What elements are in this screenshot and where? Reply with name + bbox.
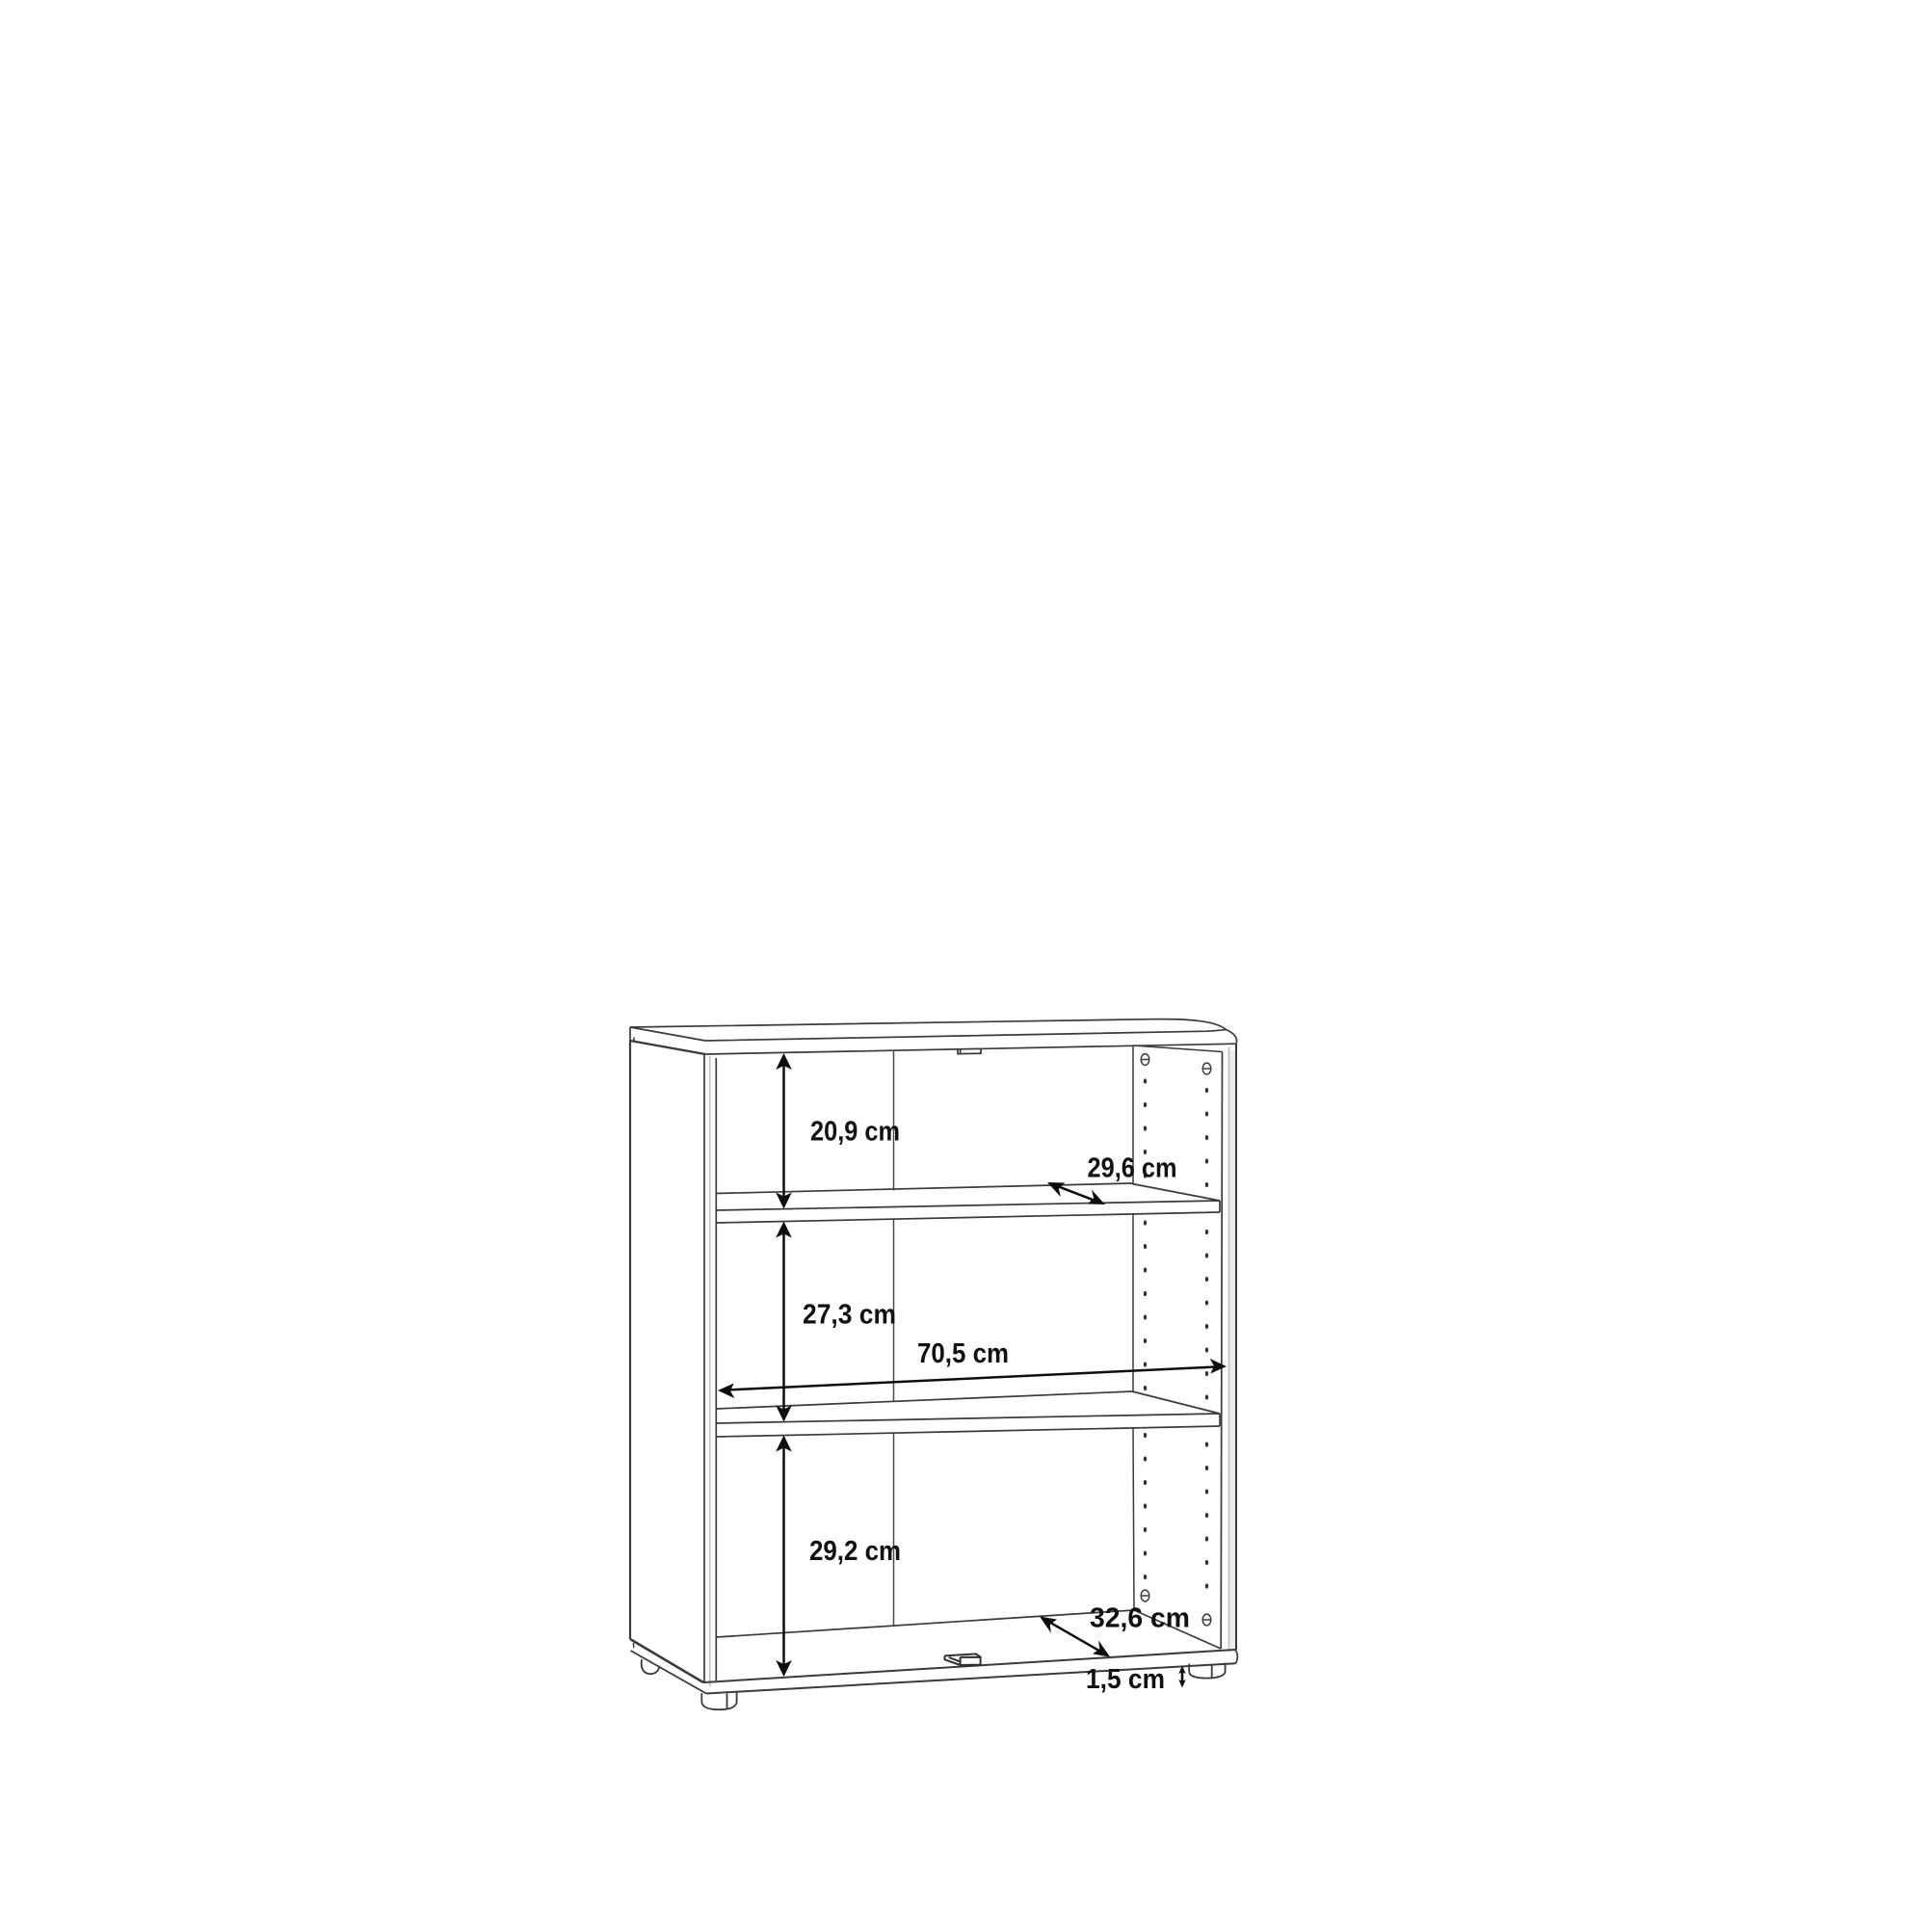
svg-text:1,5 cm: 1,5 cm	[1086, 1664, 1165, 1695]
svg-text:29,6 cm: 29,6 cm	[1088, 1153, 1177, 1184]
svg-text:70,5 cm: 70,5 cm	[917, 1338, 1009, 1369]
svg-text:20,9 cm: 20,9 cm	[810, 1117, 900, 1148]
svg-text:32,6 cm: 32,6 cm	[1090, 1603, 1190, 1634]
svg-text:29,2 cm: 29,2 cm	[809, 1536, 901, 1567]
svg-text:27,3 cm: 27,3 cm	[803, 1300, 896, 1331]
